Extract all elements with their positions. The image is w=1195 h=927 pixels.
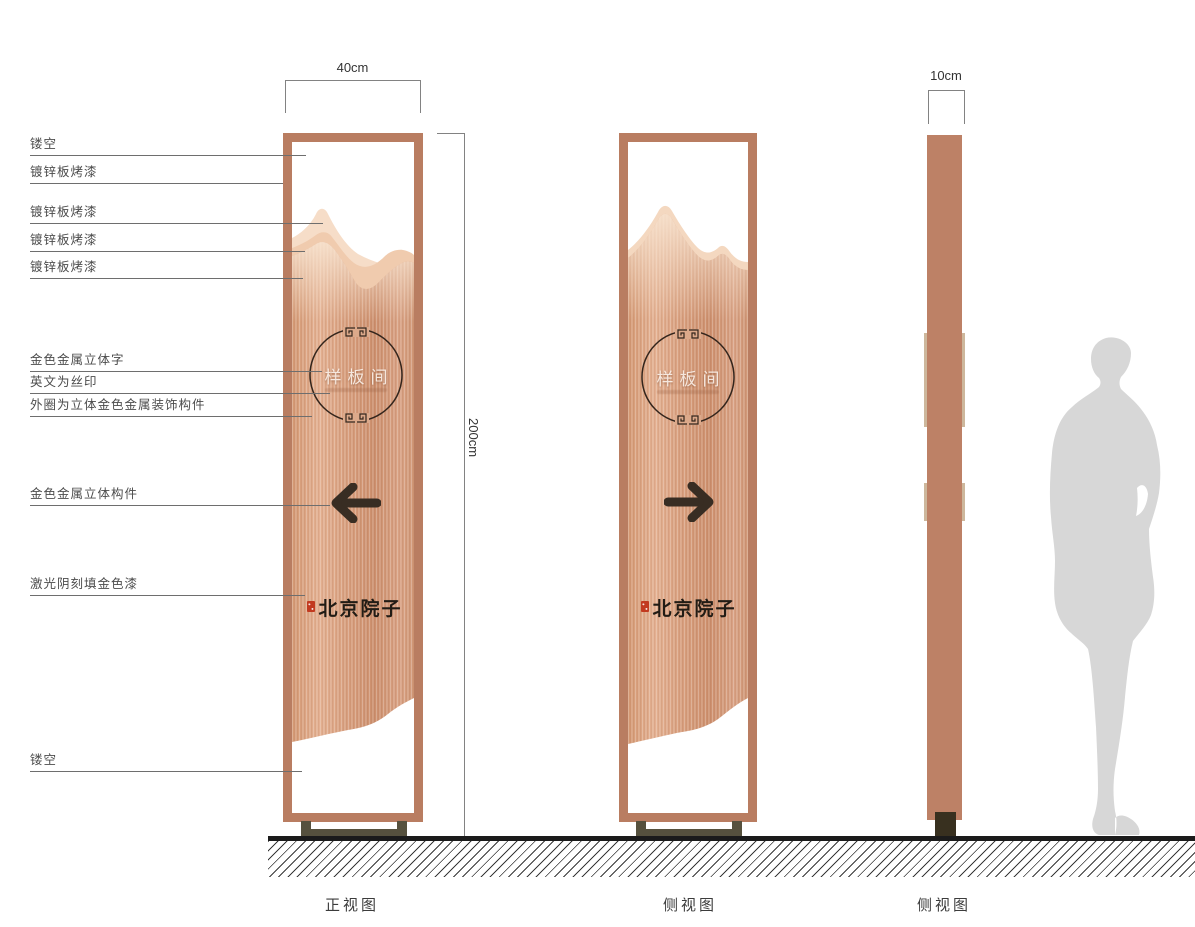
- callout-label: 英文为丝印: [30, 371, 98, 390]
- dimension-front-width: 40cm: [285, 60, 420, 75]
- callout-paint-layer2: 镀锌板烤漆: [30, 225, 305, 252]
- brand-calligraphy: 北京院子: [634, 594, 744, 620]
- red-seal-icon: [307, 601, 315, 612]
- fret-ornament-icon: [343, 413, 369, 423]
- side1-panel-artwork: [628, 142, 748, 813]
- fret-ornament-icon: [343, 327, 369, 337]
- callout-label: 金色金属立体构件: [30, 483, 138, 502]
- dimension-line-height: [464, 133, 465, 838]
- callout-paint-layer1: 镀锌板烤漆: [30, 197, 323, 224]
- dimension-height: 200cm: [466, 418, 481, 457]
- callout-label: 镀锌板烤漆: [30, 161, 98, 180]
- arrow-right-icon: [664, 482, 714, 522]
- callout-paint-frame: 镀锌板烤漆: [30, 157, 283, 184]
- callout-label: 镂空: [30, 133, 57, 152]
- callout-paint-layer3: 镀锌板烤漆: [30, 252, 303, 279]
- fret-ornament-icon: [675, 329, 701, 339]
- callout-hollow-top: 镂空: [30, 129, 306, 156]
- red-seal-icon: [641, 601, 649, 612]
- panel-copper-body: [628, 214, 748, 744]
- callout-hollow-bottom: 镂空: [30, 745, 302, 772]
- dimension-bracket-front: [285, 80, 421, 113]
- caption-front-view: 正视图: [282, 894, 422, 915]
- callout-label: 镀锌板烤漆: [30, 229, 98, 248]
- side-profile-foot: [935, 812, 956, 838]
- callout-laser-engraving: 激光阴刻填金色漆: [30, 569, 305, 596]
- arrow-left-icon: [331, 483, 381, 523]
- caption-side-view-2: 侧视图: [874, 894, 1014, 915]
- callout-label: 镂空: [30, 749, 57, 768]
- callout-label: 镀锌板烤漆: [30, 201, 98, 220]
- dimension-tick-top: [437, 133, 464, 134]
- human-silhouette: [1042, 336, 1182, 838]
- callout-label: 激光阴刻填金色漆: [30, 573, 138, 592]
- side-profile-column: [927, 135, 962, 820]
- ground-hatch: [268, 841, 1195, 877]
- callout-label: 金色金属立体字: [30, 349, 125, 368]
- dimension-bracket-side: [928, 90, 965, 124]
- fret-ornament-icon: [675, 415, 701, 425]
- brand-text: 北京院子: [318, 598, 402, 620]
- emblem-english-silkscreen: [657, 390, 719, 394]
- side1-circle-emblem: 样板间: [640, 329, 736, 425]
- brand-calligraphy: 北京院子: [300, 594, 410, 620]
- caption-side-view-1: 侧视图: [620, 894, 760, 915]
- brand-text: 北京院子: [652, 598, 736, 620]
- emblem-room-label: 样板间: [640, 365, 736, 390]
- side-view1-panel: [619, 133, 757, 822]
- dimension-side-depth: 10cm: [928, 68, 964, 83]
- callout-label: 镀锌板烤漆: [30, 256, 98, 275]
- callout-gold-ring: 外圈为立体金色金属装饰构件: [30, 390, 312, 417]
- callout-label: 外圈为立体金色金属装饰构件: [30, 394, 206, 413]
- ground-line: [268, 836, 1195, 841]
- emblem-english-silkscreen: [325, 388, 387, 392]
- front-panel-artwork: [292, 142, 414, 813]
- drawing-canvas: 镂空 镀锌板烤漆 镀锌板烤漆 镀锌板烤漆 镀锌板烤漆 金色金属立体字 英文为丝印…: [0, 0, 1195, 927]
- callout-gold-component: 金色金属立体构件: [30, 479, 330, 506]
